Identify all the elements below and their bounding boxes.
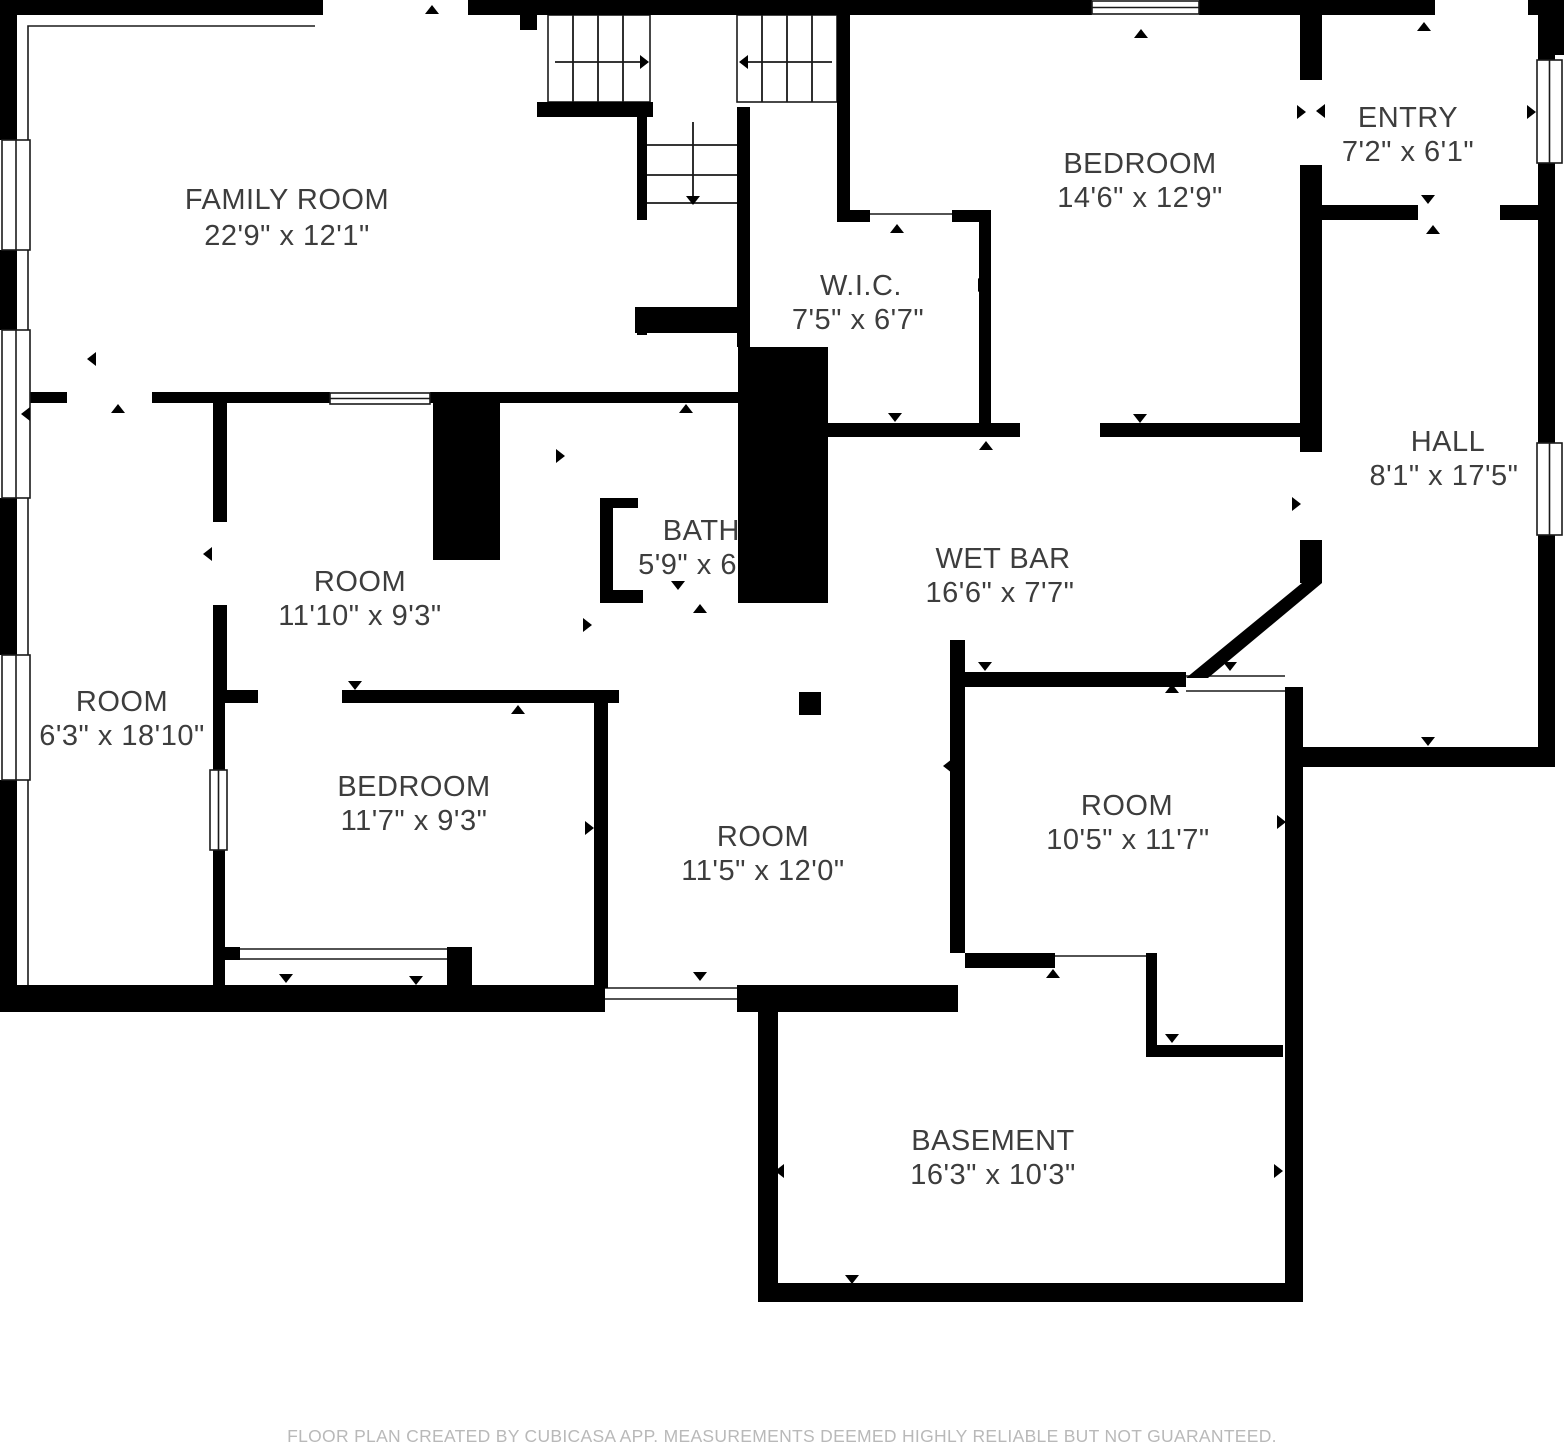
room-dims-bedroom-top: 14'6" x 12'9" bbox=[1057, 182, 1223, 214]
stair-run-left bbox=[548, 15, 650, 102]
wall-segment bbox=[225, 690, 258, 703]
wall-segment bbox=[1199, 0, 1435, 15]
wall-segment bbox=[635, 307, 737, 333]
window bbox=[2, 655, 30, 780]
room-name-wic: W.I.C. bbox=[820, 270, 902, 302]
wall-segment bbox=[737, 985, 958, 1012]
room-name-entry: ENTRY bbox=[1358, 102, 1458, 134]
room-dims-room-1110: 11'10" x 9'3" bbox=[278, 600, 441, 632]
wall-segment bbox=[0, 250, 17, 330]
wall-segment bbox=[433, 400, 500, 560]
room-name-family-room: FAMILY ROOM bbox=[185, 184, 389, 216]
window bbox=[330, 393, 430, 404]
wall-segment bbox=[758, 1283, 1303, 1302]
wall-segment bbox=[838, 210, 870, 222]
wall-segment bbox=[447, 947, 472, 988]
wall-segment bbox=[1538, 163, 1555, 443]
room-dims-room-63: 6'3" x 18'10" bbox=[39, 720, 205, 752]
wall-segment bbox=[1300, 205, 1418, 220]
wall-segment bbox=[828, 423, 1020, 437]
wall-segment bbox=[0, 0, 323, 15]
wall-segment bbox=[837, 13, 850, 222]
wall-segment bbox=[1538, 535, 1555, 767]
floor-plan-page: BATH 5'9" x 6' bbox=[0, 0, 1564, 1453]
wall-segment bbox=[0, 780, 17, 1012]
wall-segment bbox=[1300, 540, 1322, 583]
wall-segment bbox=[1538, 15, 1555, 60]
wall-segment bbox=[537, 102, 653, 117]
room-dims-entry: 7'2" x 6'1" bbox=[1342, 136, 1474, 168]
wall-segment bbox=[594, 690, 608, 988]
wall-segment bbox=[1300, 747, 1555, 767]
wall-segment bbox=[965, 953, 1055, 968]
room-dims-hall: 8'1" x 17'5" bbox=[1370, 460, 1519, 492]
wall-segment bbox=[1285, 687, 1303, 1302]
window bbox=[1537, 443, 1562, 535]
wall-segment bbox=[520, 15, 537, 30]
column bbox=[799, 692, 821, 715]
room-dims-room-115: 11'5" x 12'0" bbox=[681, 855, 844, 887]
wall-segment bbox=[1146, 1045, 1283, 1057]
room-dims-bedroom-lower: 11'7" x 9'3" bbox=[341, 805, 488, 837]
room-dims-bath: 5'9" x 6' bbox=[638, 549, 743, 581]
room-name-room-1110: ROOM bbox=[314, 566, 406, 598]
room-name-bedroom-top: BEDROOM bbox=[1063, 148, 1216, 180]
wall-segment bbox=[0, 0, 17, 140]
wall-segment bbox=[758, 1008, 778, 1302]
room-name-wet-bar: WET BAR bbox=[935, 543, 1070, 575]
wall-segment bbox=[837, 0, 1092, 15]
wall-segment bbox=[737, 107, 750, 347]
room-dims-basement: 16'3" x 10'3" bbox=[910, 1159, 1076, 1191]
room-name-basement: BASEMENT bbox=[911, 1125, 1075, 1157]
room-name-bath: BATH bbox=[663, 515, 740, 547]
wall-segment bbox=[952, 210, 991, 222]
window bbox=[1537, 60, 1562, 163]
room-dims-wic: 7'5" x 6'7" bbox=[792, 304, 924, 336]
room-name-bedroom-lower: BEDROOM bbox=[337, 771, 490, 803]
window bbox=[1092, 1, 1199, 14]
wall-segment bbox=[600, 498, 638, 508]
wall-segment bbox=[152, 392, 330, 403]
wall-segment bbox=[342, 690, 619, 703]
wall-segment bbox=[950, 672, 1186, 687]
floor-plan-svg: BATH 5'9" x 6' bbox=[0, 0, 1564, 1453]
wall-segment bbox=[637, 117, 647, 220]
wall-segment bbox=[0, 985, 605, 1012]
wall-mass bbox=[738, 347, 828, 603]
room-name-room-105: ROOM bbox=[1081, 790, 1173, 822]
room-name-room-63: ROOM bbox=[76, 686, 168, 718]
wall-segment bbox=[213, 403, 227, 522]
room-name-hall: HALL bbox=[1411, 426, 1486, 458]
room-dims-wet-bar: 16'6" x 7'7" bbox=[926, 577, 1075, 609]
wall-segment bbox=[600, 508, 613, 590]
wall-segment bbox=[0, 498, 17, 655]
window bbox=[2, 140, 30, 250]
wall-segment bbox=[468, 0, 837, 15]
wall-segment bbox=[600, 590, 643, 603]
room-dims-family-room: 22'9" x 12'1" bbox=[204, 220, 370, 252]
footer-attribution: FLOOR PLAN CREATED BY CUBICASA APP. MEAS… bbox=[287, 1426, 1277, 1446]
wall-segment bbox=[213, 605, 227, 690]
wall-segment bbox=[1100, 423, 1322, 437]
room-name-room-115: ROOM bbox=[717, 821, 809, 853]
window bbox=[210, 770, 227, 850]
wall-segment bbox=[1300, 13, 1322, 80]
wall-segment bbox=[979, 222, 991, 423]
wall-segment bbox=[1146, 953, 1157, 1057]
room-dims-room-105: 10'5" x 11'7" bbox=[1046, 824, 1209, 856]
wall-segment bbox=[225, 947, 240, 960]
